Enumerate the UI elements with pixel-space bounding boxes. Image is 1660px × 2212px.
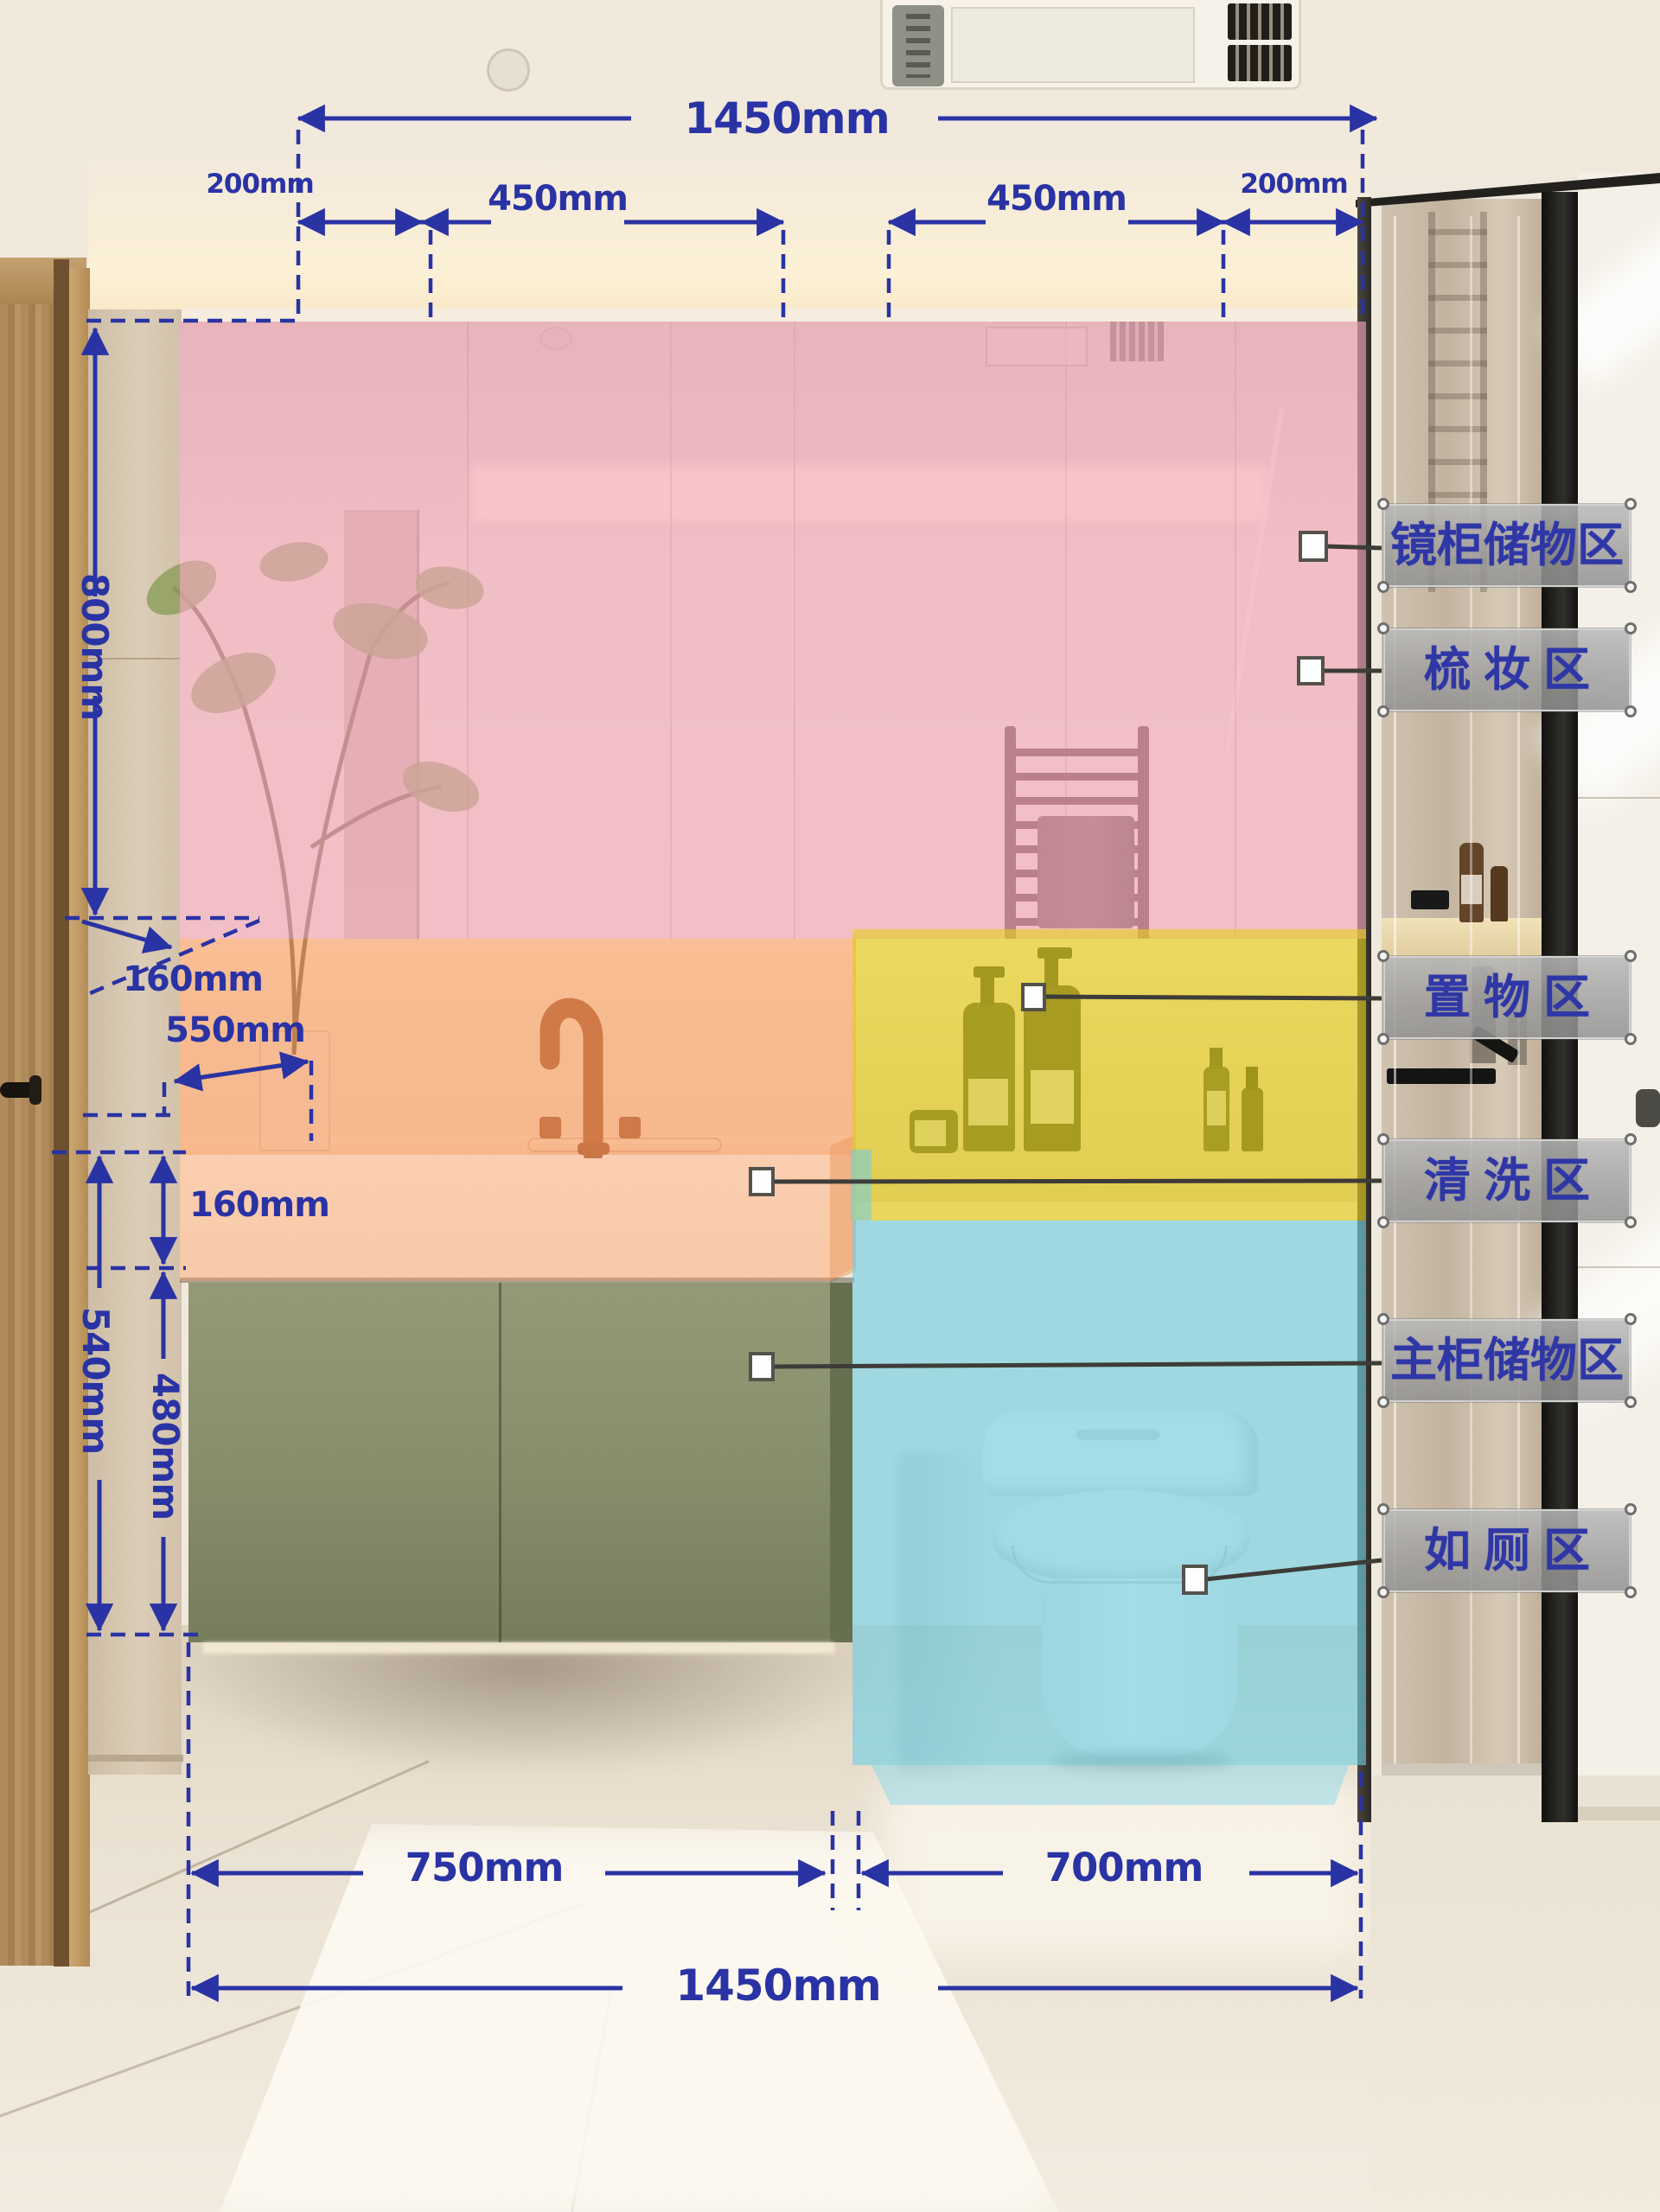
dim-top-right-margin: 200mm [1231,171,1357,198]
handle-icon [1377,950,1389,962]
zone-label-text: 如 厕 区 [1424,1527,1590,1574]
handle-icon [1377,1133,1389,1145]
handle-icon [1377,1396,1389,1408]
dim-mirror-height: 800mm [73,551,112,742]
dim-bottom-total: 1450mm [648,1964,908,2007]
dim-mirror-depth: 160mm [111,962,275,997]
zone-label-toilet: 如 厕 区 [1383,1509,1631,1592]
handle-icon [1625,1216,1637,1228]
dashed-extension-lines [52,130,1363,1998]
handle-icon [1625,498,1637,510]
dim-top-left-margin: 200mm [197,171,322,198]
handle-icon [1625,1586,1637,1598]
handle-icon [1377,1313,1389,1325]
handle-icon [1625,705,1637,717]
handle-icon [1377,622,1389,634]
dim-top-left-cabinet: 450mm [471,182,644,216]
dim-cabinet-height: 480mm [144,1351,183,1541]
leader-markers [750,532,1326,1593]
handle-icon [1377,498,1389,510]
handle-icon [1625,581,1637,593]
dim-top-right-cabinet: 450mm [970,182,1143,216]
handle-icon [1625,1396,1637,1408]
dim-top-total: 1450mm [657,97,916,140]
zone-label-main-cabinet-storage: 主柜储物区 [1383,1319,1631,1402]
annotation-layer [0,0,1660,2212]
handle-icon [1625,1133,1637,1145]
zone-label-text: 梳 妆 区 [1424,647,1590,693]
dimension-lines [82,118,1376,1988]
zone-label-text: 清 洗 区 [1424,1157,1590,1204]
zone-label-text: 置 物 区 [1424,974,1590,1021]
zone-label-grooming: 梳 妆 区 [1383,628,1631,711]
handle-icon [1377,581,1389,593]
handle-icon [1625,622,1637,634]
handle-icon [1377,705,1389,717]
handle-icon [1625,1313,1637,1325]
bathroom-annotated-render: 1450mm 200mm 450mm 450mm 200mm 800mm 160… [0,0,1660,2212]
handle-icon [1377,1503,1389,1515]
dim-vanity-total-height: 540mm [73,1285,113,1476]
zone-label-text: 镜柜储物区 [1390,522,1624,569]
zone-label-text: 主柜储物区 [1390,1337,1624,1384]
dim-counter-depth: 550mm [149,1013,322,1048]
zone-label-mirror-cabinet-storage: 镜柜储物区 [1383,504,1631,587]
handle-icon [1625,950,1637,962]
handle-icon [1377,1216,1389,1228]
handle-icon [1377,1586,1389,1598]
handle-icon [1625,1503,1637,1515]
dim-counter-thickness: 160mm [173,1188,346,1222]
zone-label-shelf-storage: 置 物 区 [1383,956,1631,1039]
handle-icon [1625,1033,1637,1045]
dim-toilet-width: 700mm [1037,1848,1210,1887]
handle-icon [1377,1033,1389,1045]
leader-lines [773,546,1382,1579]
zone-label-washing: 清 洗 区 [1383,1139,1631,1222]
dim-vanity-width: 750mm [398,1848,571,1887]
